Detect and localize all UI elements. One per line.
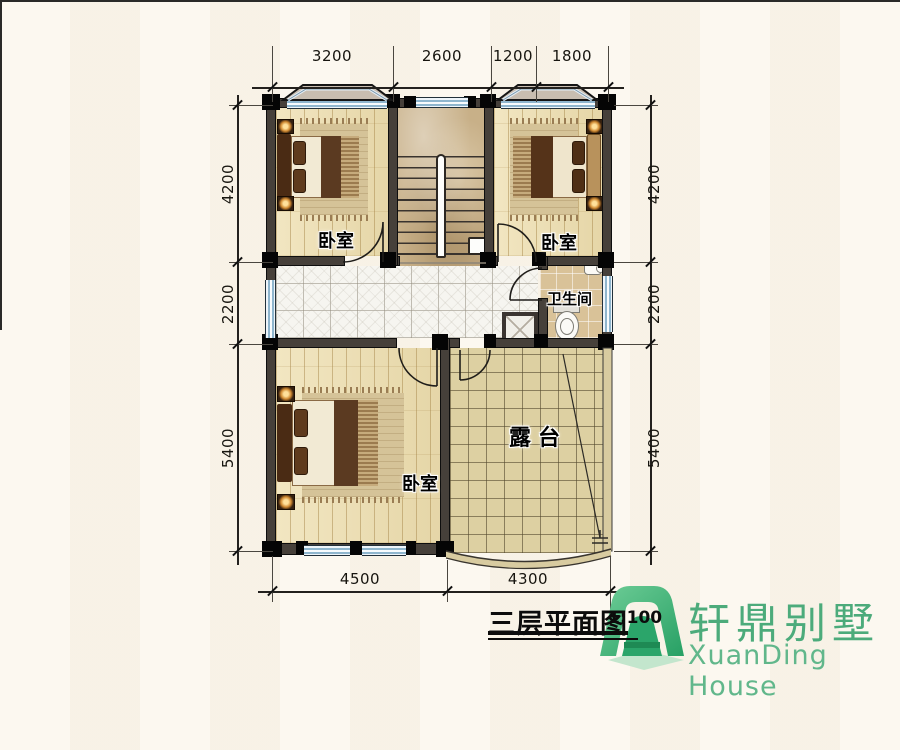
wall-corner-block xyxy=(432,334,448,350)
dim-top-4: 1800 xyxy=(542,47,602,65)
witness-line xyxy=(447,560,448,602)
window xyxy=(362,545,406,556)
bay-window-glass xyxy=(501,98,595,109)
wall-corner-block xyxy=(350,541,362,555)
room-label-terrace: 露台 xyxy=(509,420,567,452)
window xyxy=(265,280,276,338)
wall-corner-block xyxy=(406,541,416,555)
wall-corner-block xyxy=(480,94,496,108)
stair-rail xyxy=(436,154,446,258)
witness-line xyxy=(272,46,273,102)
dimension-line-bottom xyxy=(258,591,624,593)
dim-top-3: 1200 xyxy=(483,47,543,65)
bed-blanket xyxy=(321,136,341,198)
dimension-line-left xyxy=(237,95,239,565)
bay-window-glass xyxy=(287,98,387,109)
wall-corner-block xyxy=(480,252,496,268)
nightstand-lamp xyxy=(586,196,603,211)
room-label-bedroom-top-left: 卧室 xyxy=(318,227,354,253)
wall-partition-terrace xyxy=(440,338,450,555)
bed-pillow xyxy=(294,409,308,437)
window xyxy=(602,276,613,332)
dim-right-3: 5400 xyxy=(645,408,663,488)
wall-corner-block xyxy=(262,252,278,268)
wall-corner-block xyxy=(262,541,282,557)
wall-corner-block xyxy=(262,94,280,110)
nightstand-lamp xyxy=(277,494,295,510)
wall-partition-stair-left xyxy=(388,98,398,266)
wall-corner-block xyxy=(598,334,614,350)
drawing-title: 三层平面图 xyxy=(488,602,628,641)
bed-blanket xyxy=(334,400,358,486)
dimension-line-top xyxy=(252,87,624,89)
rug-fringe xyxy=(302,497,404,503)
witness-line xyxy=(272,556,273,602)
nightstand-lamp xyxy=(277,196,294,211)
dim-bottom-2: 4300 xyxy=(498,570,558,588)
nightstand-lamp xyxy=(277,386,295,402)
corridor-floor xyxy=(276,266,538,338)
wall-interior xyxy=(488,338,612,348)
bed-knit-throw xyxy=(358,400,378,486)
bed-pillow xyxy=(293,169,306,193)
page-left-edge xyxy=(0,0,2,330)
title-underline-thick xyxy=(488,631,628,635)
dim-left-2: 2200 xyxy=(219,264,237,344)
wall-corner-block xyxy=(534,334,548,348)
wall-corner-block xyxy=(598,252,614,268)
nightstand-lamp xyxy=(586,119,603,134)
wall-partition-stair-right xyxy=(484,98,494,266)
wall-corner-block xyxy=(598,94,616,110)
dim-top-1: 3200 xyxy=(302,47,362,65)
room-label-bedroom-bottom: 卧室 xyxy=(402,470,438,496)
dim-left-1: 4200 xyxy=(219,144,237,224)
dim-right-2: 2200 xyxy=(645,264,663,344)
floor-plan-page: 卧室 卧室 卧室 卫生间 露台 3200 2600 1200 1800 4200… xyxy=(0,0,900,750)
rug-fringe xyxy=(510,215,578,221)
bed-knit-throw xyxy=(513,136,531,198)
logo-name-en: XuanDing House xyxy=(688,640,900,702)
wall-corner-block xyxy=(484,334,496,348)
bed-knit-throw xyxy=(341,136,359,198)
window xyxy=(416,97,468,108)
dim-right-1: 4200 xyxy=(645,144,663,224)
nightstand-lamp xyxy=(277,119,294,134)
witness-line xyxy=(608,46,609,102)
drawing-scale: 1:100 xyxy=(608,608,662,628)
toilet-bowl-ring xyxy=(560,318,574,335)
bed-pillow xyxy=(572,169,585,193)
bed-headboard xyxy=(277,404,292,482)
dim-top-2: 2600 xyxy=(412,47,472,65)
bed-pillow xyxy=(293,141,306,165)
wall-corner-block xyxy=(436,541,454,557)
bed-headboard xyxy=(587,134,601,200)
window xyxy=(304,545,350,556)
wall-interior xyxy=(266,338,397,348)
wall-corner-block xyxy=(380,252,396,268)
room-label-bathroom: 卫生间 xyxy=(547,288,592,309)
witness-line xyxy=(393,46,394,102)
title-underline-thin xyxy=(488,638,638,640)
dim-left-3: 5400 xyxy=(219,408,237,488)
bed-pillow xyxy=(572,141,585,165)
room-label-bedroom-top-right: 卧室 xyxy=(541,229,577,255)
dim-bottom-1: 4500 xyxy=(330,570,390,588)
bed-headboard xyxy=(277,134,291,200)
bed-blanket xyxy=(531,136,553,198)
wall-corner-block xyxy=(404,96,416,108)
page-top-edge xyxy=(0,0,900,2)
rug-fringe xyxy=(300,215,368,221)
bed-pillow xyxy=(294,447,308,475)
